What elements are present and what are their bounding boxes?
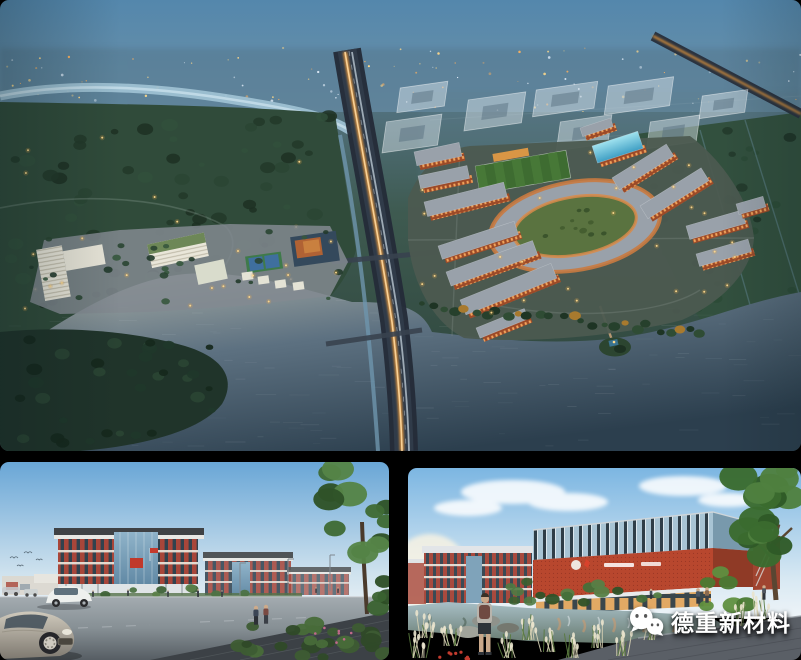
street-view-rendering — [0, 462, 389, 660]
building-logo — [130, 558, 143, 568]
far-left-building — [408, 559, 426, 604]
rendering-collage: 德重新材料 — [0, 0, 801, 660]
signage-text-blur — [604, 563, 634, 567]
wechat-icon — [628, 606, 664, 636]
aerial-dusk-rendering — [0, 0, 801, 451]
watermark-text: 德重新材料 — [671, 604, 791, 638]
backpack — [479, 605, 490, 619]
aerial-scene — [0, 0, 801, 451]
office-building-3 — [287, 567, 351, 595]
wechat-watermark: 德重新材料 — [628, 604, 791, 638]
emblem — [571, 560, 581, 570]
main-office-building — [54, 528, 204, 595]
street-scene — [0, 462, 389, 660]
red-flag — [150, 548, 158, 553]
vignette — [0, 0, 801, 451]
office-building-2 — [203, 552, 293, 595]
